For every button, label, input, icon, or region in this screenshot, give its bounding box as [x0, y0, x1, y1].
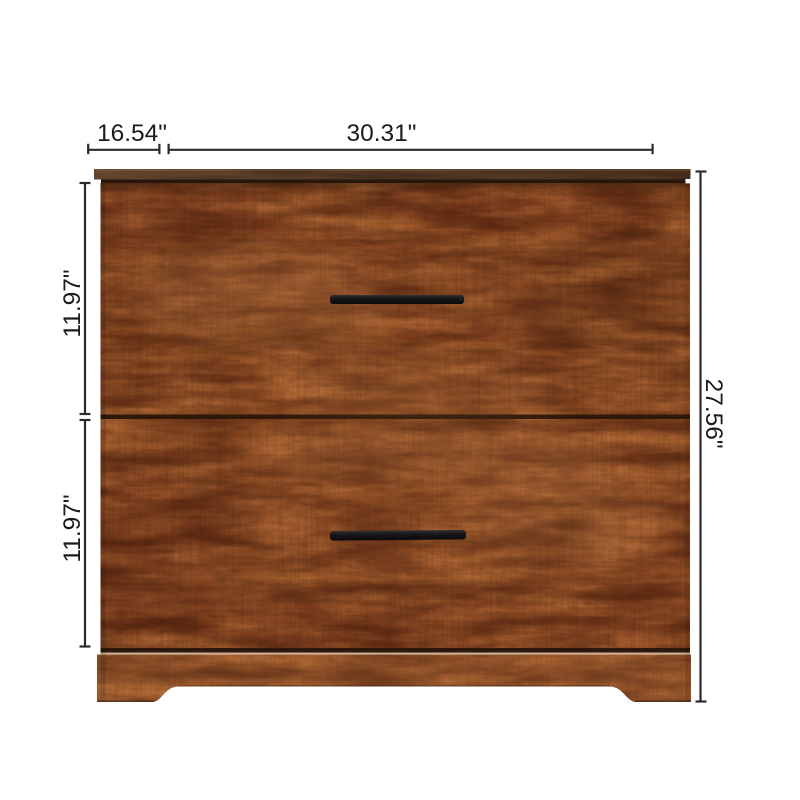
svg-text:16.54": 16.54" — [97, 120, 167, 147]
svg-text:30.31": 30.31" — [346, 120, 416, 147]
svg-text:11.97": 11.97" — [59, 269, 86, 337]
svg-text:11.97": 11.97" — [59, 494, 86, 562]
svg-text:27.56": 27.56" — [700, 379, 727, 449]
